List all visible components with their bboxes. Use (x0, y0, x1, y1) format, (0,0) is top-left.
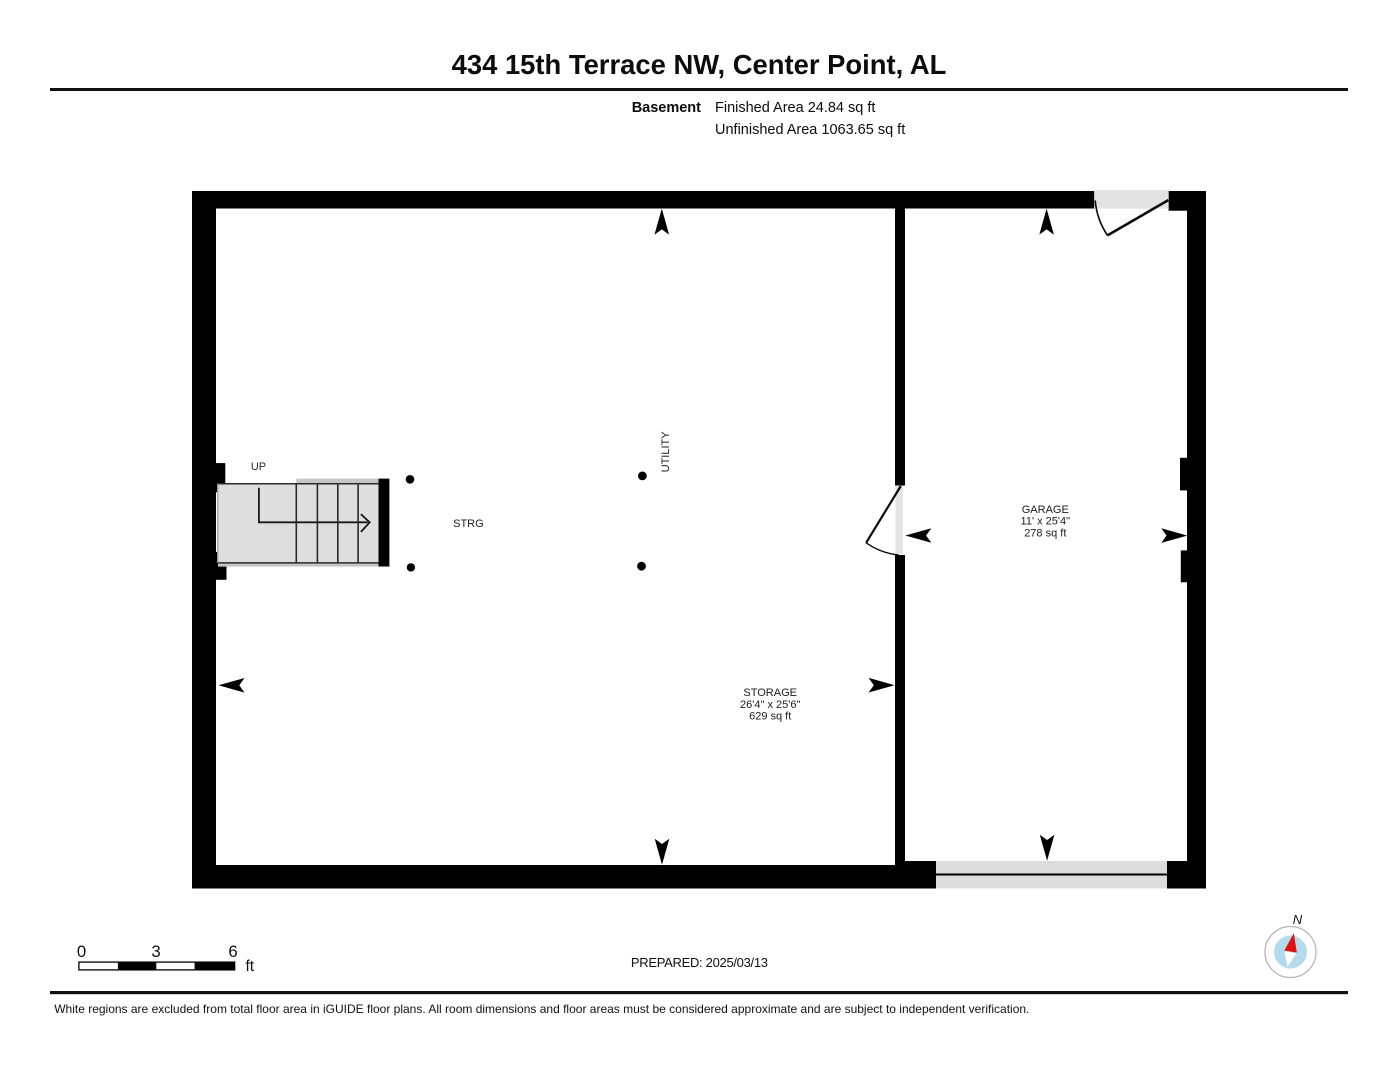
svg-text:UP: UP (251, 461, 266, 473)
svg-text:278 sq ft: 278 sq ft (1024, 527, 1066, 539)
svg-text:26'4" x 25'6": 26'4" x 25'6" (740, 699, 800, 711)
svg-text:GARAGE: GARAGE (1022, 504, 1069, 516)
svg-text:11' x 25'4": 11' x 25'4" (1021, 516, 1071, 528)
svg-text:3: 3 (151, 942, 160, 961)
svg-text:629 sq ft: 629 sq ft (749, 711, 791, 723)
svg-text:N: N (1293, 912, 1303, 927)
svg-text:STORAGE: STORAGE (743, 687, 797, 699)
svg-text:0: 0 (77, 942, 86, 961)
svg-text:White regions are excluded fro: White regions are excluded from total fl… (54, 1002, 1029, 1016)
svg-text:6: 6 (228, 942, 237, 961)
svg-text:PREPARED: 2025/03/13: PREPARED: 2025/03/13 (631, 955, 768, 970)
svg-text:STRG: STRG (453, 518, 484, 530)
svg-text:ft: ft (246, 958, 255, 975)
svg-text:UTILITY: UTILITY (660, 431, 672, 473)
